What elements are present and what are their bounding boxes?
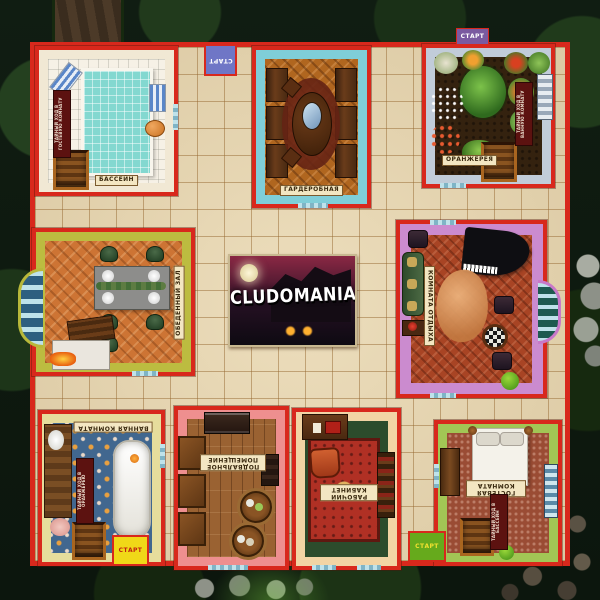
secret-stairs[interactable]: [460, 518, 494, 556]
start-label: СТАРТ: [461, 33, 485, 40]
door[interactable]: [132, 371, 158, 376]
room-label-pool: БАССЕЙН: [95, 175, 138, 186]
sink: [48, 430, 64, 450]
room-study[interactable]: РАБОЧИЙ КАБИНЕТ: [292, 408, 401, 570]
plate: [102, 270, 114, 282]
dining-chair: [100, 246, 118, 262]
typewriter: [325, 421, 341, 434]
bay-window: [18, 268, 43, 348]
mirror: [302, 102, 322, 130]
dining-chair: [146, 246, 164, 262]
sofa: [402, 252, 424, 316]
barrel-contents: [255, 503, 263, 511]
wardrobe-cabinet: [335, 144, 357, 178]
swimming-pool: [81, 68, 153, 176]
plate: [148, 292, 160, 304]
potted-plant: [501, 372, 519, 390]
room-label-dining: ОБЕДЕННЫЙ ЗАЛ: [174, 266, 185, 340]
start-square-yellow[interactable]: СТАРТ: [112, 535, 149, 566]
room-lounge[interactable]: КОМНАТА ОТДЫХА: [396, 220, 547, 398]
bed-post: [524, 426, 533, 435]
secret-stairs[interactable]: [72, 522, 106, 560]
armchair: [492, 352, 512, 370]
barrel-contents: [237, 535, 245, 543]
plate: [102, 292, 114, 304]
poolside-table: [145, 120, 165, 137]
door[interactable]: [430, 220, 456, 225]
plant: [528, 52, 550, 74]
flower-pot: [504, 52, 528, 74]
bath-rug: [50, 518, 70, 536]
armchair: [494, 296, 514, 314]
wine-barrel: [237, 488, 275, 526]
plate: [148, 270, 160, 282]
dirt-path-decor: [52, 0, 124, 44]
start-square-purple[interactable]: СТАРТ: [456, 28, 489, 45]
crate: [178, 474, 206, 508]
game-board-screenshot: ТАЙНЫЙ ХОД В ГОСТЕВУЮ КОМНАТУ БАССЕЙН ГА…: [0, 0, 600, 600]
game-title: CLUDOMANIA: [230, 282, 356, 308]
door[interactable]: [440, 183, 466, 188]
moon-icon: [240, 264, 258, 282]
door[interactable]: [312, 565, 336, 570]
table-garland: [96, 282, 166, 290]
secret-passage-sign: ТАЙНЫЙ ХОД В ОРАНЖЕРЕЮ: [76, 458, 94, 524]
pool-lounger: [149, 84, 166, 112]
room-label-study: РАБОЧИЙ КАБИНЕТ: [320, 484, 378, 501]
pillow: [476, 432, 500, 446]
start-square-blue[interactable]: СТАРТ: [204, 44, 237, 76]
game-logo-poster: CLUDOMANIA: [228, 254, 357, 347]
room-pool[interactable]: ТАЙНЫЙ ХОД В ГОСТЕВУЮ КОМНАТУ БАССЕЙН: [35, 46, 178, 196]
armchair: [408, 230, 428, 248]
pillow: [407, 257, 417, 267]
fire: [50, 352, 76, 366]
room-cellar[interactable]: ПОДВАЛЬНОЕ ПОМЕЩЕНИЕ: [174, 406, 289, 570]
secret-passage-sign: ТАЙНЫЙ ХОД В ВАННУЮ КОМНАТУ: [515, 82, 533, 146]
flower-vase: [408, 322, 417, 331]
start-square-green[interactable]: СТАРТ: [408, 531, 446, 562]
room-label-wardrobe: ГАРДЕРОБНАЯ: [280, 185, 343, 196]
start-label: СТАРТ: [209, 57, 233, 64]
wine-barrel: [229, 522, 267, 560]
flower-pot: [462, 50, 484, 70]
bed-post: [468, 426, 477, 435]
bookshelf: [377, 452, 395, 518]
secret-passage-sign: ТАЙНЫЙ ХОД В ГОСТЕВУЮ КОМНАТУ: [53, 90, 71, 158]
dining-chair: [146, 314, 164, 330]
door[interactable]: [173, 104, 178, 130]
door[interactable]: [298, 203, 328, 208]
barrel-contents: [246, 538, 254, 546]
door[interactable]: [434, 464, 439, 488]
door[interactable]: [430, 393, 456, 398]
room-guest[interactable]: ТАЙНЫЙ ХОД В БАССЕЙН ГОСТЕВАЯ КОМНАТА: [434, 420, 562, 566]
door[interactable]: [357, 565, 381, 570]
writing-desk: [302, 414, 348, 440]
room-dining-hall[interactable]: ОБЕДЕННЫЙ ЗАЛ: [32, 228, 195, 376]
storage-chest: [204, 412, 250, 434]
flower-bush: [430, 124, 460, 154]
room-label-lounge: КОМНАТА ОТДЫХА: [424, 266, 435, 346]
room-wardrobe[interactable]: ГАРДЕРОБНАЯ: [252, 46, 371, 208]
door[interactable]: [208, 565, 248, 570]
start-label: СТАРТ: [415, 543, 439, 550]
armchair: [309, 447, 341, 479]
pillow: [407, 301, 417, 311]
greenhouse-window: [537, 74, 553, 120]
pillow: [407, 279, 417, 289]
start-label: СТАРТ: [119, 547, 143, 554]
wardrobe-cabinet: [335, 68, 357, 102]
door[interactable]: [160, 444, 165, 468]
room-conservatory[interactable]: ТАЙНЫЙ ХОД В ВАННУЮ КОМНАТУ ОРАНЖЕРЕЯ: [422, 44, 555, 188]
plant: [434, 52, 458, 74]
barrel-contents: [246, 499, 254, 507]
room-label-conservatory: ОРАНЖЕРЕЯ: [442, 155, 497, 166]
flower-bush: [430, 86, 464, 122]
radiator: [544, 464, 558, 518]
room-label-cellar: ПОДВАЛЬНОЕ ПОМЕЩЕНИЕ: [200, 454, 266, 471]
pillow: [500, 432, 524, 446]
palm-plant: [460, 66, 506, 118]
paper-sheet: [313, 423, 321, 433]
crate: [178, 512, 206, 546]
bath-sponge: [130, 454, 139, 463]
secret-passage-sign: ТАЙНЫЙ ХОД В БАССЕЙН: [490, 494, 508, 550]
chess-table: [482, 324, 508, 350]
glowing-eyes: [282, 325, 316, 337]
room-label-bathroom: ВАННАЯ КОМНАТА: [74, 422, 153, 433]
wardrobe-cabinet: [440, 448, 460, 496]
bed: [472, 428, 528, 486]
